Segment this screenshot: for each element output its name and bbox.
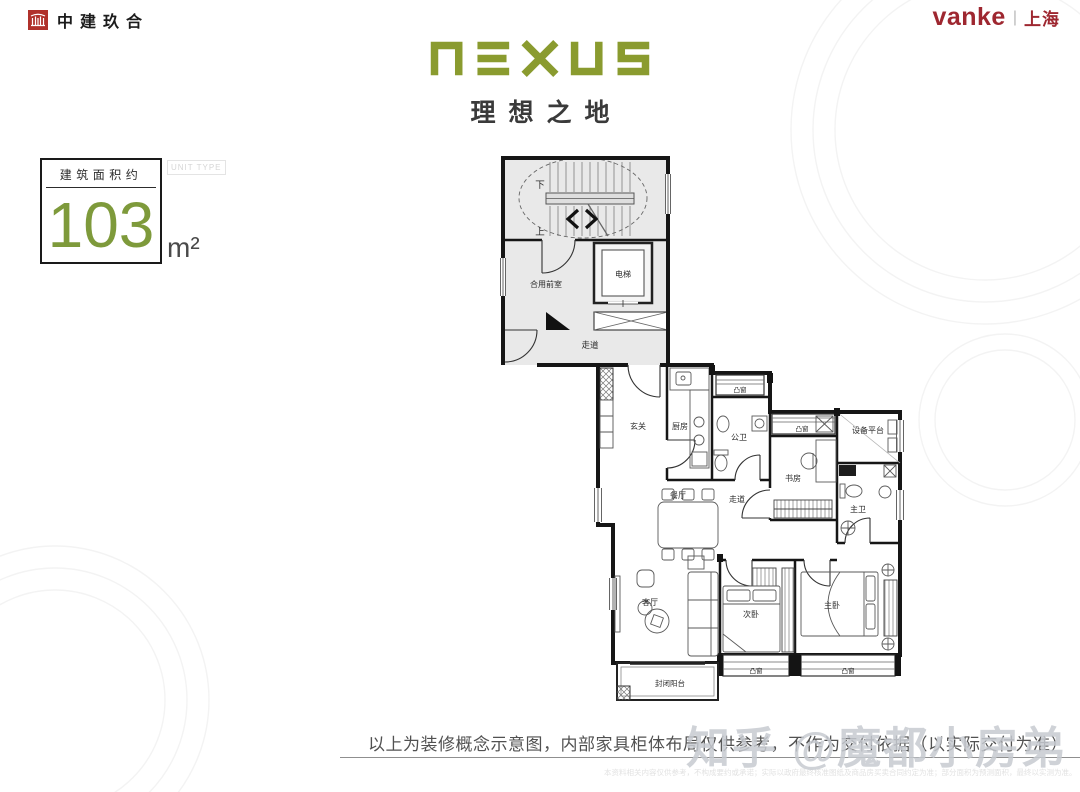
room-label-shared-lobby: 合用前室: [530, 279, 562, 289]
floor-plan: 下 上 电梯 合用前室 走道: [480, 140, 920, 720]
stair-lobby-block: 下 上 电梯 合用前室 走道: [500, 158, 671, 365]
area-badge: 建筑面积约 103 UNIT TYPE m²: [40, 158, 226, 264]
builder-logo-mark: [28, 10, 48, 30]
room-label-lobby-corridor: 走道: [581, 340, 599, 350]
room-label-bay-second-bedroom: 凸窗: [750, 666, 763, 675]
foyer-cabinet: [600, 368, 613, 448]
wardrobe-icon: [782, 568, 794, 652]
room-label-bay-study: 凸窗: [796, 424, 809, 433]
nexus-wordmark: [415, 40, 665, 77]
room-label-dining: 餐厅: [670, 491, 686, 500]
room-label-stairs-up: 上: [535, 227, 545, 238]
room-label-guest-bath: 公卫: [731, 433, 747, 442]
room-label-master-bedroom: 主卧: [824, 600, 840, 610]
area-badge-side: UNIT TYPE m²: [167, 158, 226, 264]
room-label-bay-north: 凸窗: [734, 385, 747, 394]
unit-type-tag: UNIT TYPE: [167, 160, 226, 175]
vanke-region: 上海: [1024, 5, 1060, 30]
room-label-elevator: 电梯: [615, 269, 631, 279]
area-badge-label: 建筑面积约: [46, 160, 156, 188]
project-logo: 理想之地: [0, 40, 1080, 129]
project-tagline: 理想之地: [0, 93, 1080, 129]
room-label-living: 客厅: [642, 597, 658, 607]
watermark-text: 知乎 @魔都小房弟: [686, 712, 1067, 776]
room-label-equipment-platform: 设备平台: [852, 425, 884, 435]
area-badge-value: 103: [42, 188, 160, 262]
room-label-bay-master-bedroom: 凸窗: [842, 666, 855, 675]
room-label-study: 书房: [785, 473, 801, 483]
room-label-foyer: 玄关: [630, 421, 646, 431]
vanke-wordmark: vanke: [932, 5, 1005, 30]
builder-logo: 中建玖合: [28, 8, 149, 32]
room-label-enclosed-balcony: 封闭阳台: [655, 678, 685, 688]
builder-name: 中建玖合: [57, 8, 149, 32]
room-label-second-bedroom: 次卧: [743, 609, 759, 619]
room-label-kitchen: 厨房: [672, 421, 688, 431]
room-label-stairs-down: 下: [535, 180, 545, 191]
area-badge-unit: m²: [167, 234, 226, 262]
poster-page: 中建玖合 vanke | 上海 理想之地 建筑面积约 103 UNIT TYPE…: [0, 0, 1080, 792]
vanke-logo: vanke | 上海: [932, 5, 1060, 30]
room-label-master-bath: 主卫: [850, 504, 866, 514]
wardrobe-icon: [884, 580, 897, 636]
wardrobe-icon: [752, 568, 776, 586]
vanke-divider: |: [1013, 9, 1017, 27]
room-label-corridor: 走道: [729, 494, 745, 504]
area-badge-box: 建筑面积约 103: [40, 158, 162, 264]
enclosed-balcony: 封闭阳台: [617, 662, 718, 701]
